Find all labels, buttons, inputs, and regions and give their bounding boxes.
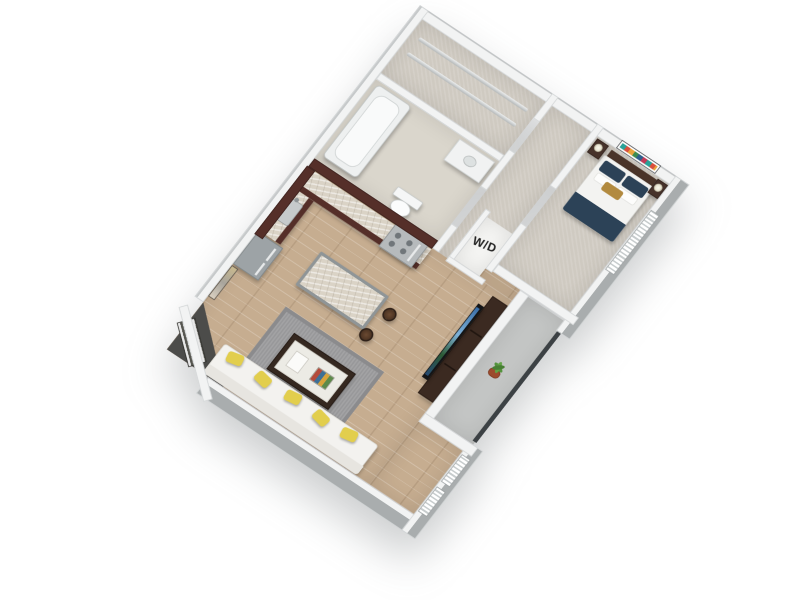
sink-basin	[461, 153, 479, 169]
burner	[394, 232, 403, 240]
burner	[387, 240, 396, 248]
console-shelf-line	[470, 329, 482, 338]
floorplan-render: W/D	[0, 0, 800, 600]
burner	[399, 247, 408, 255]
apartment-floorplan: W/D	[142, 5, 691, 545]
plant-leaf	[492, 365, 505, 371]
burner	[405, 239, 414, 247]
console-shelf-line	[444, 363, 456, 372]
